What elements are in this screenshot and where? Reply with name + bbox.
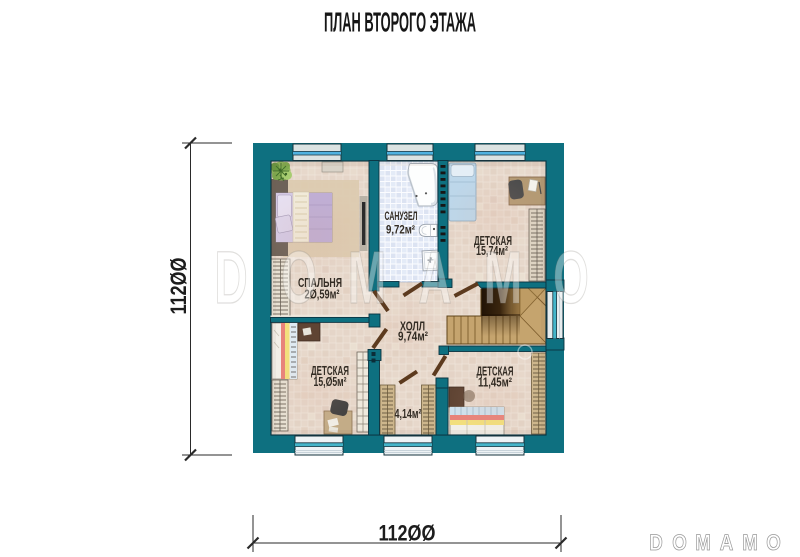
svg-text:112ØØ: 112ØØ	[379, 521, 436, 546]
svg-text:15,Ø5м²: 15,Ø5м²	[314, 375, 347, 389]
svg-text:9,74м²: 9,74м²	[398, 330, 428, 344]
svg-text:112ØØ: 112ØØ	[166, 258, 191, 315]
svg-text:A: A	[418, 237, 451, 320]
svg-text:M: M	[695, 532, 711, 556]
svg-text:11,45м²: 11,45м²	[478, 376, 512, 390]
svg-text:D: D	[214, 237, 247, 320]
svg-text:M: M	[742, 532, 758, 556]
svg-text:D: D	[649, 532, 663, 556]
svg-text:O: O	[553, 237, 589, 320]
svg-text:O: O	[766, 532, 781, 556]
svg-text:САНУЗЕЛ: САНУЗЕЛ	[385, 209, 418, 223]
svg-text:9,72м²: 9,72м²	[386, 223, 415, 237]
svg-text:O: O	[281, 237, 317, 320]
svg-text:4,14м²: 4,14м²	[395, 407, 422, 421]
svg-text:M: M	[484, 237, 522, 320]
svg-text:M: M	[348, 237, 386, 320]
svg-text:A: A	[720, 532, 734, 556]
svg-text:ПЛАН ВТОРОГО ЭТАЖА: ПЛАН ВТОРОГО ЭТАЖА	[324, 7, 476, 38]
svg-text:O: O	[672, 532, 687, 556]
